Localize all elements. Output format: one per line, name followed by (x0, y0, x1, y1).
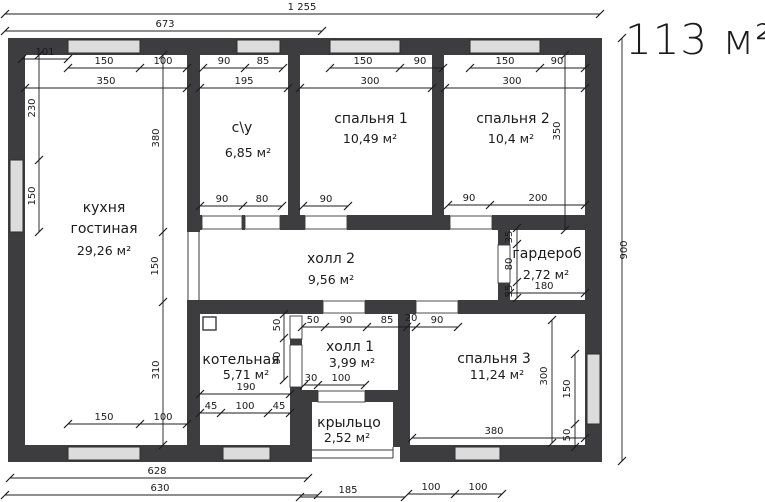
dim-label: 90 (431, 315, 444, 326)
room-area-bedroom2: 10,4 м² (488, 131, 534, 146)
dim-label: 673 (155, 19, 174, 30)
dim-label: 50 (307, 315, 320, 326)
dim-label: 310 (151, 360, 162, 379)
dim-label: 100 (468, 482, 487, 493)
dim-label: 90 (340, 315, 353, 326)
room-label-hall1: холл 1 (326, 339, 374, 355)
dim-label: 150 (94, 412, 113, 423)
dim-label: 50 (272, 319, 283, 332)
dim-label: 90 (320, 194, 333, 205)
floorplan-svg: 1 255 673 101 150 100 350 90 85 195 150 … (0, 0, 765, 502)
dim-label: 100 (235, 401, 254, 412)
dim-label: 200 (528, 193, 547, 204)
dim-label: 628 (147, 466, 166, 477)
dim-label: 1 255 (288, 2, 317, 13)
room-label-wardrobe: гардероб (512, 246, 581, 262)
dim-label: 180 (534, 281, 553, 292)
room-label-bedroom1: спальня 1 (334, 111, 408, 127)
room-label-kitchen: кухня (83, 200, 126, 216)
room-area-bedroom3: 11,24 м² (470, 367, 524, 382)
room-area-hall1: 3,99 м² (329, 355, 375, 370)
dim-label: 85 (381, 315, 394, 326)
dim-label: 195 (234, 76, 253, 87)
dim-label: 30 (305, 373, 318, 384)
dim-label: 80 (256, 194, 269, 205)
floor-plan: 1 255 673 101 150 100 350 90 85 195 150 … (0, 0, 765, 502)
dim-label: 150 (150, 256, 161, 275)
dim-label: 45 (273, 401, 286, 412)
dim-label: 150 (94, 56, 113, 67)
dim-label: 350 (96, 76, 115, 87)
dim-label: 230 (27, 98, 38, 117)
dim-label: 90 (414, 56, 427, 67)
room-area-wardrobe: 2,72 м² (523, 267, 569, 282)
dim-label: 100 (331, 373, 350, 384)
dim-label: 45 (205, 401, 218, 412)
room-area-bedroom1: 10,49 м² (343, 131, 397, 146)
dim-label: 350 (552, 121, 563, 140)
room-area-wc: 6,85 м² (225, 145, 271, 160)
dim-label: 380 (484, 426, 503, 437)
dim-label: 100 (153, 56, 172, 67)
room-label-boiler: котельная (202, 352, 279, 368)
room-label-kitchen-line2: гостиная (70, 221, 137, 237)
dim-label: 150 (495, 56, 514, 67)
dim-label: 185 (338, 485, 357, 496)
dim-label: 35 (504, 231, 515, 244)
dim-label: 100 (421, 482, 440, 493)
dim-label: 90 (218, 56, 231, 67)
room-area-hall2: 9,56 м² (308, 272, 354, 287)
dim-label: 300 (360, 76, 379, 87)
dim-label: 35 (504, 285, 515, 298)
room-label-porch: крыльцо (317, 415, 381, 431)
dim-label: 20 (405, 313, 418, 324)
room-label-wc: с\у (232, 120, 253, 136)
dim-label: 90 (551, 56, 564, 67)
dim-label: 85 (257, 56, 270, 67)
dim-label: 50 (562, 429, 573, 442)
dim-label: 90 (216, 194, 229, 205)
dim-label: 150 (562, 379, 573, 398)
room-label-hall2: холл 2 (307, 251, 355, 267)
dim-label: 100 (153, 412, 172, 423)
room-area-porch: 2,52 м² (324, 430, 370, 445)
dim-label: 380 (151, 128, 162, 147)
dim-label: 300 (539, 366, 550, 385)
total-area-watermark: 113 м² (625, 15, 765, 64)
room-label-bedroom2: спальня 2 (476, 111, 550, 127)
dim-label: 150 (353, 56, 372, 67)
dim-label: 190 (236, 382, 255, 393)
dim-label: 300 (502, 76, 521, 87)
dim-label: 630 (150, 483, 169, 494)
dim-label: 150 (27, 186, 38, 205)
boiler-unit (203, 317, 216, 330)
room-label-bedroom3: спальня 3 (457, 351, 531, 367)
room-area-kitchen: 29,26 м² (77, 243, 131, 258)
dim-label: 900 (619, 240, 630, 259)
dim-label: 90 (463, 193, 476, 204)
dim-label: 101 (35, 47, 54, 58)
room-area-boiler: 5,71 м² (223, 367, 269, 382)
